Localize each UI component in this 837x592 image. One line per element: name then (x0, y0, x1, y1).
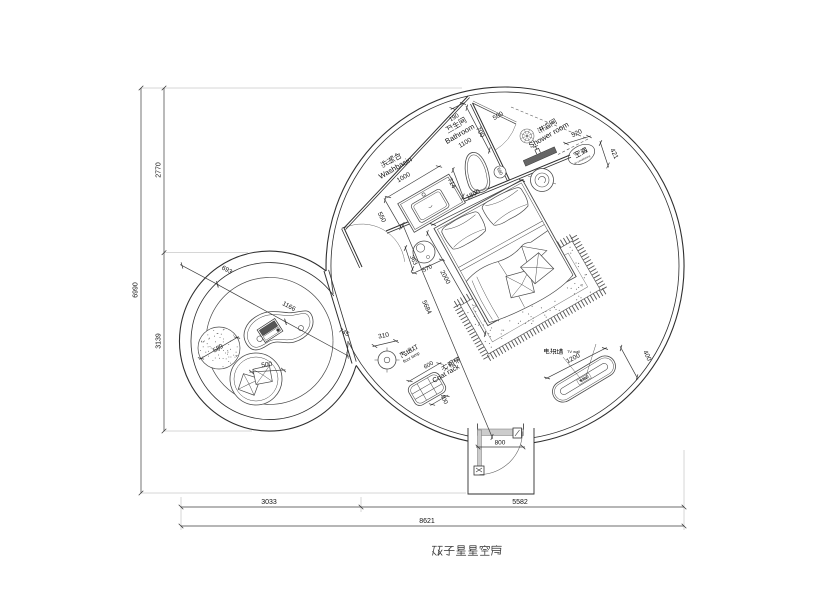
svg-text:8621: 8621 (419, 518, 435, 525)
svg-text:5582: 5582 (512, 499, 528, 506)
svg-text:3139: 3139 (156, 333, 163, 349)
svg-text:6990: 6990 (133, 282, 140, 298)
svg-text:2770: 2770 (156, 162, 163, 178)
svg-text:3033: 3033 (261, 499, 277, 506)
svg-text:800: 800 (495, 440, 506, 447)
